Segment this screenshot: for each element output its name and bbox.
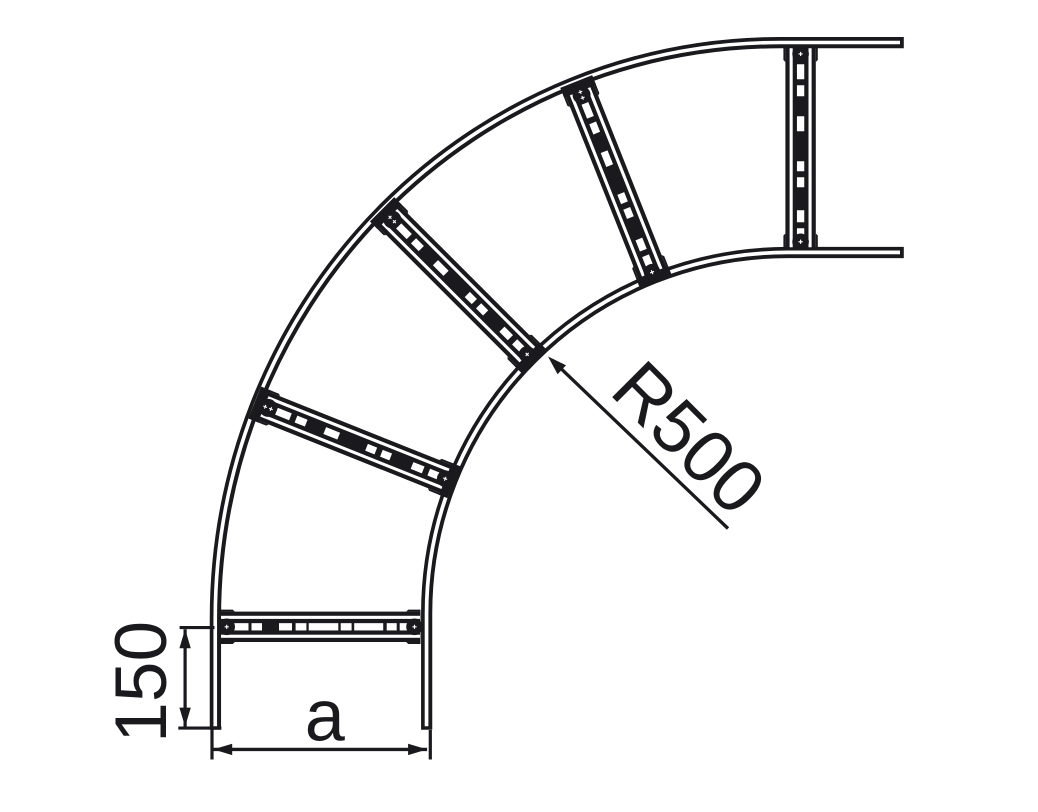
svg-text:150: 150 — [101, 621, 182, 743]
svg-text:R500: R500 — [597, 345, 782, 530]
svg-text:a: a — [305, 677, 346, 757]
